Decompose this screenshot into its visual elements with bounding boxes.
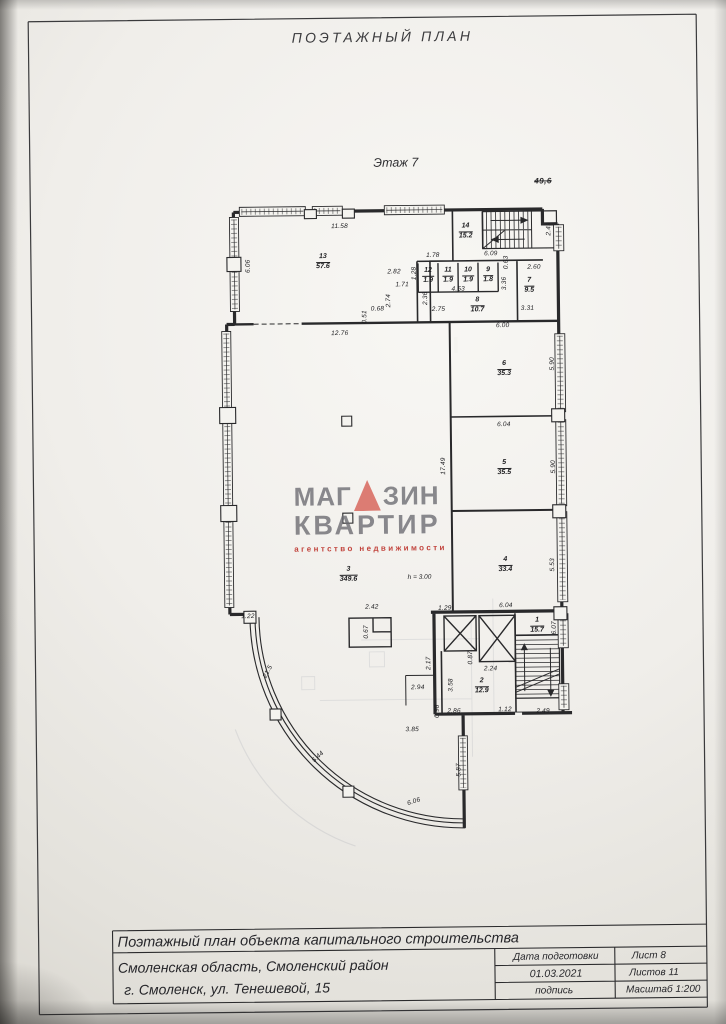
dimension-label: 5.87 [456, 763, 463, 777]
room-label: 1357.6 [316, 253, 330, 272]
titleblock-address-line2: г. Смоленск, ул. Тенешевой, 15 [124, 979, 330, 997]
dimension-label: 1.29 [438, 606, 452, 613]
watermark-triangle-icon [354, 480, 381, 511]
room-label: 1415.2 [459, 222, 473, 241]
room-label: 433.4 [498, 556, 512, 575]
titleblock-scale: Масштаб 1:200 [626, 984, 701, 996]
photo-corner-shadow [0, 934, 140, 1024]
room-label: 121.9 [422, 267, 434, 286]
dimension-label: 6.00 [496, 323, 510, 330]
dimension-label: 6.06 [246, 260, 253, 274]
dimension-label: 2.49 [536, 709, 550, 716]
dimension-label: 5.53 [550, 558, 557, 572]
room-label: 535.5 [497, 459, 511, 478]
dimension-label: 5.90 [551, 460, 558, 474]
dimension-label: 6.09 [484, 251, 498, 258]
dimension-label: 2.74 [386, 294, 393, 308]
dimension-label: 17.49 [441, 457, 448, 474]
dimension-label: 3.58 [448, 678, 455, 692]
watermark-word1-left: МАГ [293, 483, 351, 510]
photo-edge-shadow-top [0, 0, 726, 10]
dimension-label: 1.22 [241, 614, 255, 621]
dimension-label: 0.63 [504, 256, 511, 270]
dimension-label: 1.78 [426, 253, 440, 260]
watermark: МАГ ЗИН КВАРТИР агентство недвижимости [293, 477, 440, 554]
dimension-label: 0.87 [468, 651, 475, 665]
titleblock-sheet-number: Лист 8 [632, 950, 666, 961]
room-label: 212.9 [475, 677, 489, 696]
floor-label: Этаж 7 [373, 155, 418, 170]
dimension-label: 5.90 [550, 357, 557, 371]
room-label: 101.9 [462, 266, 474, 285]
dimension-label: 3.31 [521, 306, 535, 313]
dimension-label: 0.51 [362, 310, 369, 324]
dimension-label: 2.49 [546, 222, 553, 236]
photo-edge-shadow-right [714, 0, 726, 1024]
titleblock-address-line1: Смоленская область, Смоленский район [118, 957, 389, 976]
elevator-shafts [444, 615, 516, 662]
room-label: 3349.6 [340, 566, 358, 585]
room-label: 810.7 [471, 296, 485, 315]
titleblock-signature-label: подпись [535, 985, 573, 996]
dimension-label: 2.86 [447, 709, 461, 716]
watermark-line1: МАГ ЗИН [293, 477, 439, 510]
stairs-bottom [515, 635, 560, 698]
dimension-label: 1.12 [498, 707, 512, 714]
dimension-label: 6.04 [497, 422, 511, 429]
dimension-label: 2.82 [387, 269, 401, 276]
room-label: 91.8 [483, 266, 493, 285]
dimension-label: 2.17 [426, 656, 433, 670]
dimension-label: 6.04 [499, 603, 513, 610]
ceiling-height-note: h = 3.00 [408, 574, 432, 581]
paper-sheet: ПОЭТАЖНЫЙ ПЛАН Этаж 7 49,6 h = 3.00 1357… [0, 0, 726, 1024]
dimension-label: 0.68 [371, 306, 385, 313]
dimension-label: 12.76 [331, 331, 348, 338]
dimension-label: 2.94 [411, 685, 425, 692]
dimension-label: 2.36 [423, 292, 430, 306]
room-label: 111.9 [442, 267, 453, 286]
crossed-out-note: 49,6 [534, 176, 552, 185]
dimension-label: 0.98 [435, 704, 442, 718]
dimension-label: 0.67 [364, 625, 371, 639]
titleblock-sheet-count: Листов 11 [629, 967, 679, 979]
titleblock-prep-date: 01.03.2021 [530, 968, 583, 981]
room-label: 115.7 [530, 617, 544, 636]
dimension-label: 2.42 [365, 605, 379, 612]
dimension-label: 1.71 [395, 282, 409, 289]
watermark-word2: КВАРТИР [294, 511, 440, 540]
dimension-label: 6.07 [552, 621, 559, 635]
dimension-label: 2.75 [432, 307, 446, 314]
page-title: ПОЭТАЖНЫЙ ПЛАН [292, 28, 474, 46]
watermark-word1-right: ЗИН [383, 482, 440, 509]
scanned-floorplan-photo: ПОЭТАЖНЫЙ ПЛАН Этаж 7 49,6 h = 3.00 1357… [0, 0, 726, 1024]
dimension-label: 3.85 [405, 727, 419, 734]
dimension-label: 3.36 [502, 277, 509, 291]
titleblock-prep-label: Дата подготовки [513, 951, 599, 963]
dimension-label: 4.53 [451, 287, 465, 294]
room-label: 635.3 [497, 360, 511, 379]
interior-walls [225, 209, 563, 717]
photo-edge-shadow-left [0, 0, 18, 1024]
watermark-tagline: агентство недвижимости [294, 544, 440, 554]
dimension-label: 2.24 [484, 666, 498, 673]
room-label: 79.5 [524, 277, 534, 296]
dimension-label: 11.58 [331, 224, 348, 231]
dimension-label: 1.28 [412, 267, 419, 281]
dimension-label: 2.60 [527, 265, 541, 272]
